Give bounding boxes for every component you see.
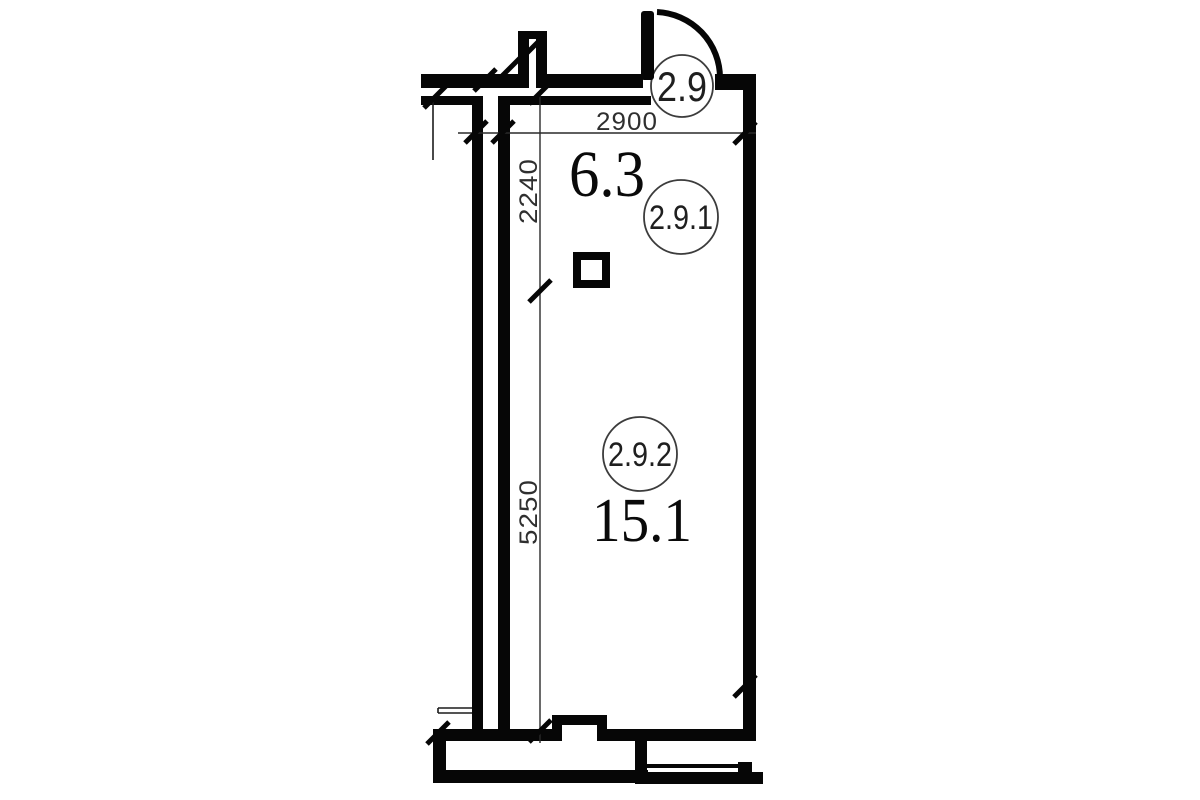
area-label-292: 15.1	[592, 487, 692, 555]
window-sill-line	[597, 729, 756, 741]
wall-top-outer-left	[421, 74, 529, 88]
dimension-lower-height: 5250	[515, 479, 543, 545]
wall-right	[743, 88, 756, 737]
area-label-291: 6.3	[569, 138, 645, 211]
room-tag-291: 2.9.1	[649, 199, 713, 237]
window-glazing-line	[647, 764, 740, 768]
room-tag-292: 2.9.2	[608, 436, 672, 474]
break-line-left-bottom	[438, 708, 472, 713]
dimension-top-width: 2900	[596, 108, 658, 136]
wall-left-outer	[472, 96, 483, 729]
wall-bottom-outer-left	[433, 770, 648, 783]
wall-left-inner	[498, 105, 510, 729]
door-leaf	[641, 11, 654, 80]
duct-square-symbol	[577, 256, 606, 284]
floorplan-svg: 2.9 2.9.1 2.9.2 2900 2240 5250 6.3 15.1	[0, 0, 1200, 800]
room-tag-29: 2.9	[657, 63, 707, 110]
wall-top-outer-right	[536, 74, 643, 88]
dimension-upper-height: 2240	[515, 158, 543, 224]
wall-right-bottom-stub	[738, 762, 752, 784]
floor-plan-page: 2.9 2.9.1 2.9.2 2900 2240 5250 6.3 15.1	[0, 0, 1200, 800]
wall-top-inner-right	[498, 96, 651, 105]
